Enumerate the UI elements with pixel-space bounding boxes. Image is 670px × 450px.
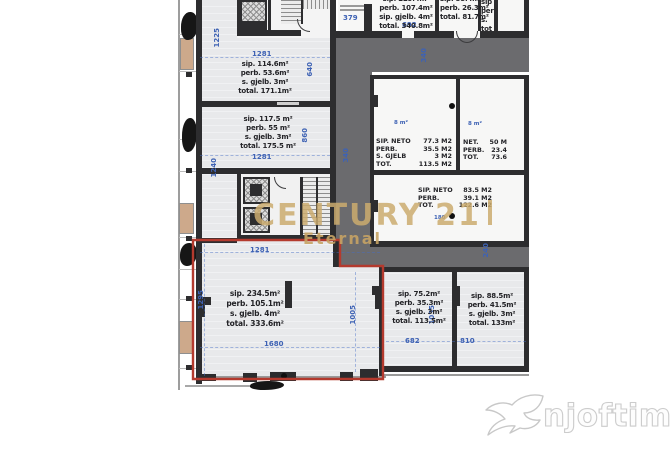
century21-subtext: Eternal xyxy=(303,229,382,248)
century21-watermark: CENTURY 21 xyxy=(253,198,492,233)
bird-logo-icon xyxy=(481,392,547,440)
floorplan-screenshot: 379 xyxy=(0,0,670,450)
century21-bar xyxy=(488,200,492,225)
njoftime-watermark: njoftime.al xyxy=(543,398,670,434)
century21-text: CENTURY 21 xyxy=(253,198,481,233)
